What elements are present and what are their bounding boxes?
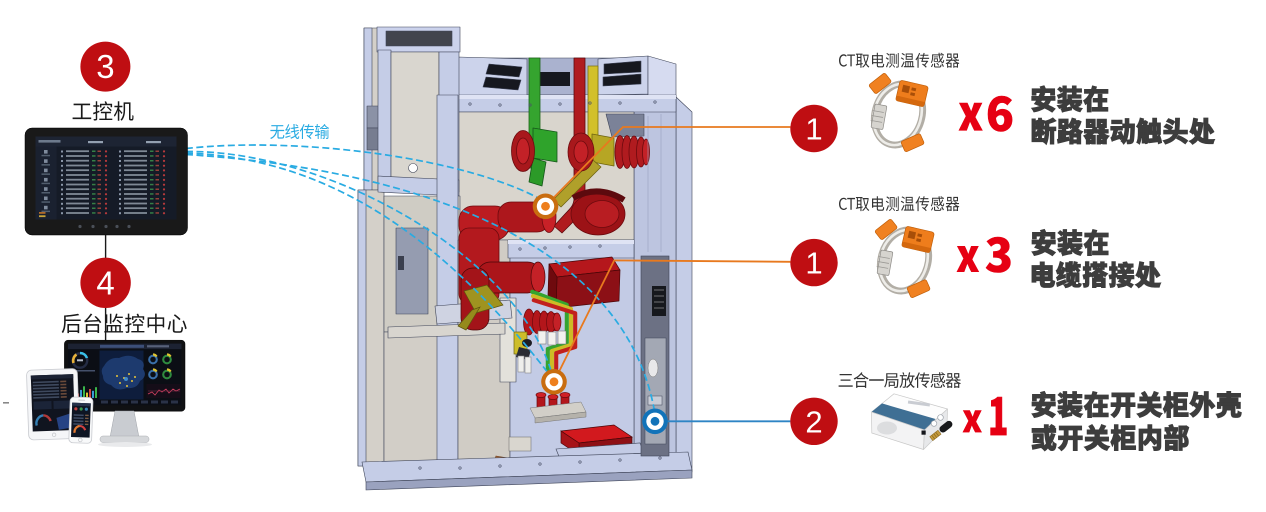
svg-text:3: 3 xyxy=(96,48,114,85)
svg-text:1: 1 xyxy=(805,112,822,147)
svg-text:2: 2 xyxy=(805,404,822,439)
svg-text:1: 1 xyxy=(805,246,822,281)
svg-text:4: 4 xyxy=(96,265,114,302)
